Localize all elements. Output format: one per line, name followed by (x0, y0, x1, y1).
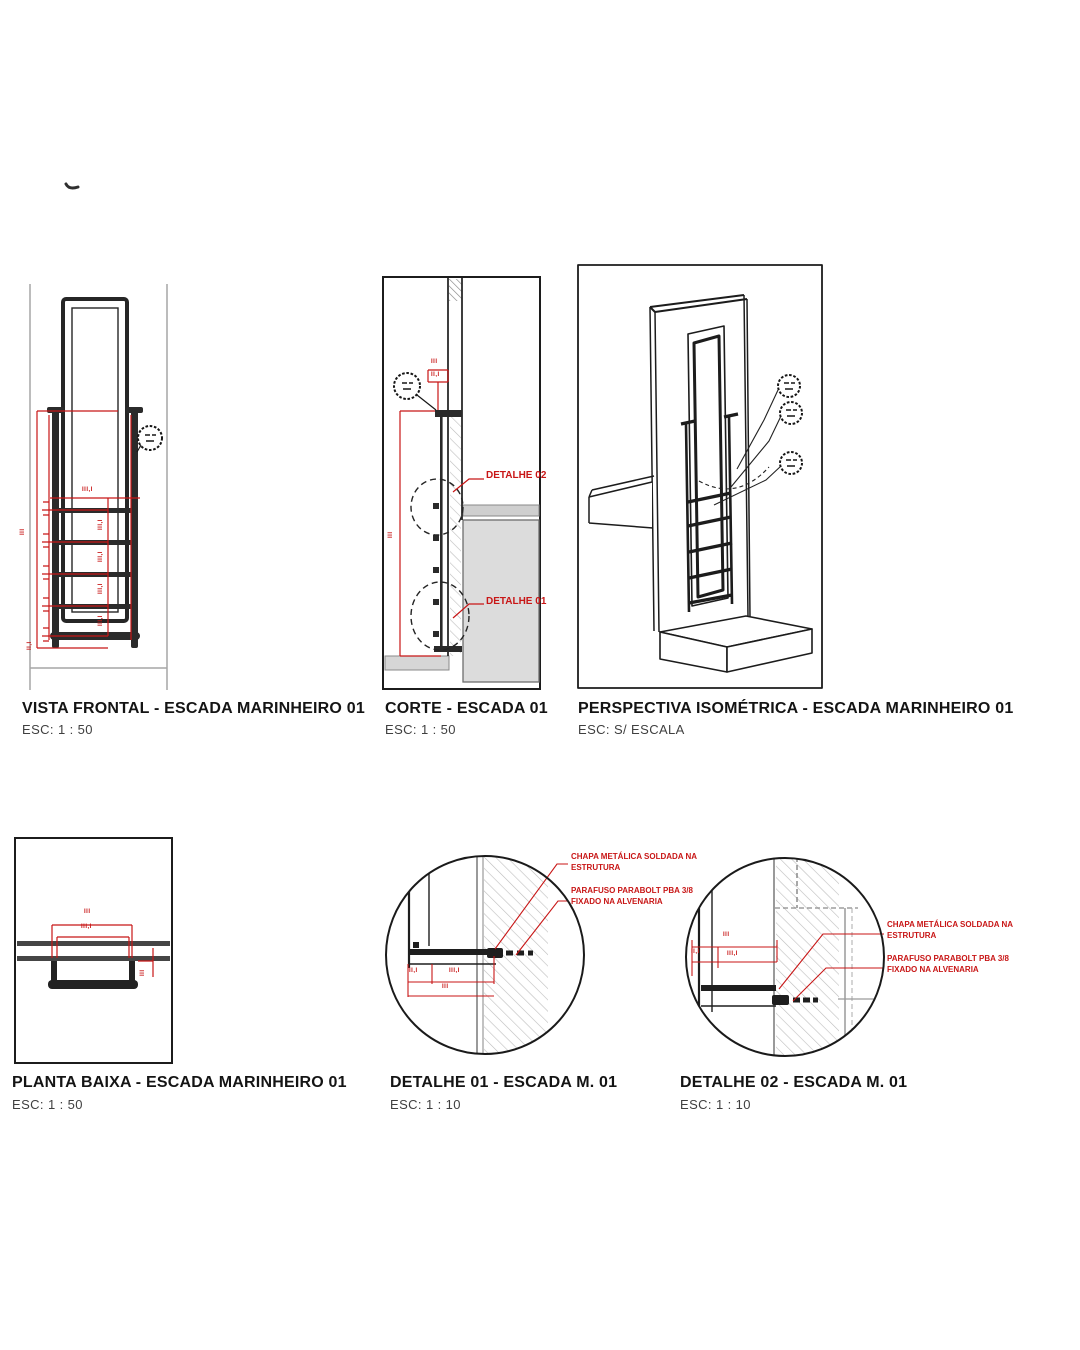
scale-vista-frontal: ESC: 1 : 50 (22, 722, 93, 737)
title-vista-frontal: VISTA FRONTAL - ESCADA MARINHEIRO 01 (22, 700, 365, 718)
scale-perspectiva: ESC: S/ ESCALA (578, 722, 685, 737)
title-detalhe-02: DETALHE 02 - ESCADA M. 01 (680, 1074, 907, 1092)
dim-corte-box: II,I (431, 372, 440, 378)
annotation-parafuso-parabolt: PARAFUSO PARABOLT PBA 3/8 FIXADO NA ALVE… (571, 886, 693, 907)
annotation-chapa-metalica: CHAPA METÁLICA SOLDADA NA ESTRUTURA (887, 920, 1013, 941)
dim-d1-c: III (442, 984, 449, 990)
wall-hatch (450, 417, 461, 656)
dim-d2-b: II,I (691, 949, 700, 955)
dim-d1-b: III,I (449, 968, 460, 974)
dim-spacing: III,I (98, 551, 104, 562)
wall-plan-line-1 (17, 941, 170, 946)
annotation-line: ESTRUTURA (887, 931, 1013, 942)
title-corte: CORTE - ESCADA 01 (385, 700, 548, 718)
annotation-line: PARAFUSO PARABOLT PBA 3/8 (887, 954, 1009, 965)
scale-planta-baixa: ESC: 1 : 50 (12, 1097, 83, 1112)
annotation-line: PARAFUSO PARABOLT PBA 3/8 (571, 886, 693, 897)
scale-corte: ESC: 1 : 50 (385, 722, 456, 737)
floor-band (385, 656, 449, 670)
title-detalhe-01: DETALHE 01 - ESCADA M. 01 (390, 1074, 617, 1092)
dim-corte-height: III (388, 531, 394, 538)
iso-base-slab (660, 616, 812, 672)
annotation-line: CHAPA METÁLICA SOLDADA NA (887, 920, 1013, 931)
drawing-sheet: VISTA FRONTAL - ESCADA MARINHEIRO 01 ESC… (0, 0, 1080, 1350)
masonry-hatch (776, 857, 839, 1059)
dim-bottom: II,I (27, 641, 33, 650)
annotation-parafuso-parabolt: PARAFUSO PARABOLT PBA 3/8 FIXADO NA ALVE… (887, 954, 1009, 975)
dim-d1-a: II,I (409, 968, 418, 974)
annotation-chapa-metalica: CHAPA METÁLICA SOLDADA NA ESTRUTURA (571, 852, 697, 873)
dim-spacing: III,I (98, 583, 104, 594)
dim-planta-outer: III (84, 909, 91, 915)
title-planta-baixa: PLANTA BAIXA - ESCADA MARINHEIRO 01 (12, 1074, 347, 1092)
detail-callout-bubble (138, 426, 162, 450)
vista-frontal-drawing (30, 284, 167, 690)
dim-corte-top: III (431, 359, 438, 365)
sheet-linework (0, 0, 1080, 1350)
bubble-leader (417, 395, 436, 410)
detalhe-01-drawing (386, 855, 584, 1057)
scale-detalhe-02: ESC: 1 : 10 (680, 1097, 751, 1112)
dim-planta-side: III (140, 969, 146, 976)
annotation-line: CHAPA METÁLICA SOLDADA NA (571, 852, 697, 863)
annotation-line: ESTRUTURA (571, 863, 697, 874)
dashed-leader (699, 467, 769, 489)
detalhe-02-drawing (686, 857, 884, 1059)
dim-planta-inner: III,I (81, 924, 92, 930)
stray-mark (66, 184, 78, 188)
scale-detalhe-01: ESC: 1 : 10 (390, 1097, 461, 1112)
wall-plan-line-2 (17, 956, 170, 961)
corte-drawing (383, 277, 540, 689)
planta-baixa-drawing (15, 838, 172, 1063)
slab-band (463, 505, 539, 516)
iso-side-beam (589, 476, 654, 528)
dim-height: III (20, 528, 26, 535)
dim-d2-a: III (723, 932, 730, 938)
detail-callout-bubble (394, 373, 420, 399)
title-perspectiva: PERSPECTIVA ISOMÉTRICA - ESCADA MARINHEI… (578, 700, 1013, 718)
detail-callout-bubbles (778, 375, 802, 474)
callout-detalhe-01: DETALHE 01 (486, 596, 546, 607)
dim-d2-c: III,I (727, 951, 738, 957)
annotation-line: FIXADO NA ALVENARIA (571, 897, 693, 908)
planta-border (15, 838, 172, 1063)
annotation-line: FIXADO NA ALVENARIA (887, 965, 1009, 976)
perspectiva-drawing (578, 265, 822, 688)
dim-spacing: III,I (98, 615, 104, 626)
ladder-plan (48, 961, 138, 989)
dim-width: III,I (82, 487, 93, 493)
iso-opening-inner (694, 336, 723, 597)
callout-detalhe-02: DETALHE 02 (486, 470, 546, 481)
iso-wall (650, 295, 750, 632)
dim-spacing: III,I (98, 519, 104, 530)
wall-hatch-top (449, 279, 462, 301)
planta-dimension-lines (52, 925, 153, 977)
